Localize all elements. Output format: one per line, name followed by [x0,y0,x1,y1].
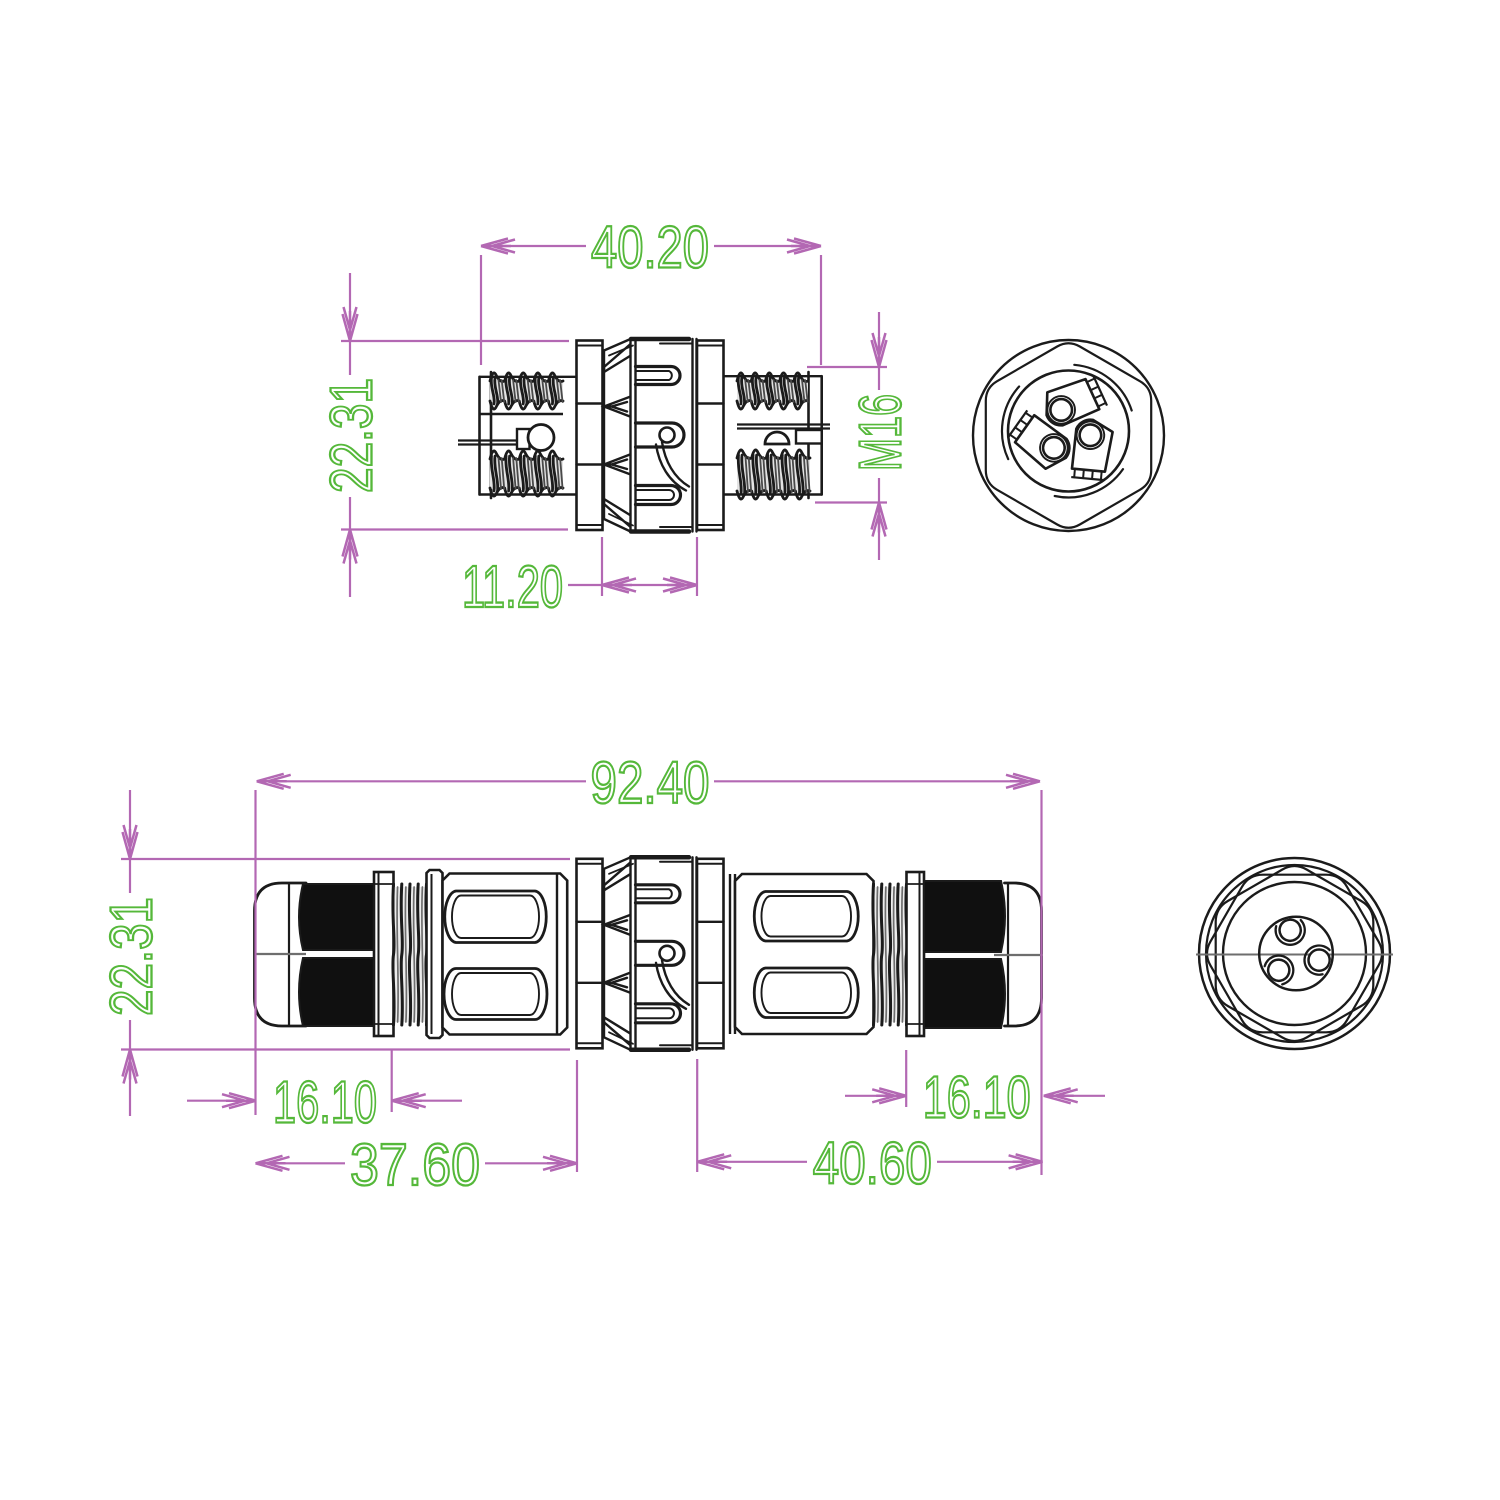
svg-text:16.10: 16.10 [273,1069,377,1135]
svg-text:16.10: 16.10 [923,1064,1031,1130]
svg-text:37.60: 37.60 [350,1132,480,1198]
svg-text:11.20: 11.20 [462,554,563,620]
svg-text:22.31: 22.31 [319,378,385,493]
svg-text:40.60: 40.60 [813,1130,932,1196]
svg-text:40.20: 40.20 [591,215,709,281]
svg-text:92.40: 92.40 [591,750,710,816]
svg-text:22.31: 22.31 [99,897,165,1016]
svg-text:M16: M16 [848,394,914,471]
